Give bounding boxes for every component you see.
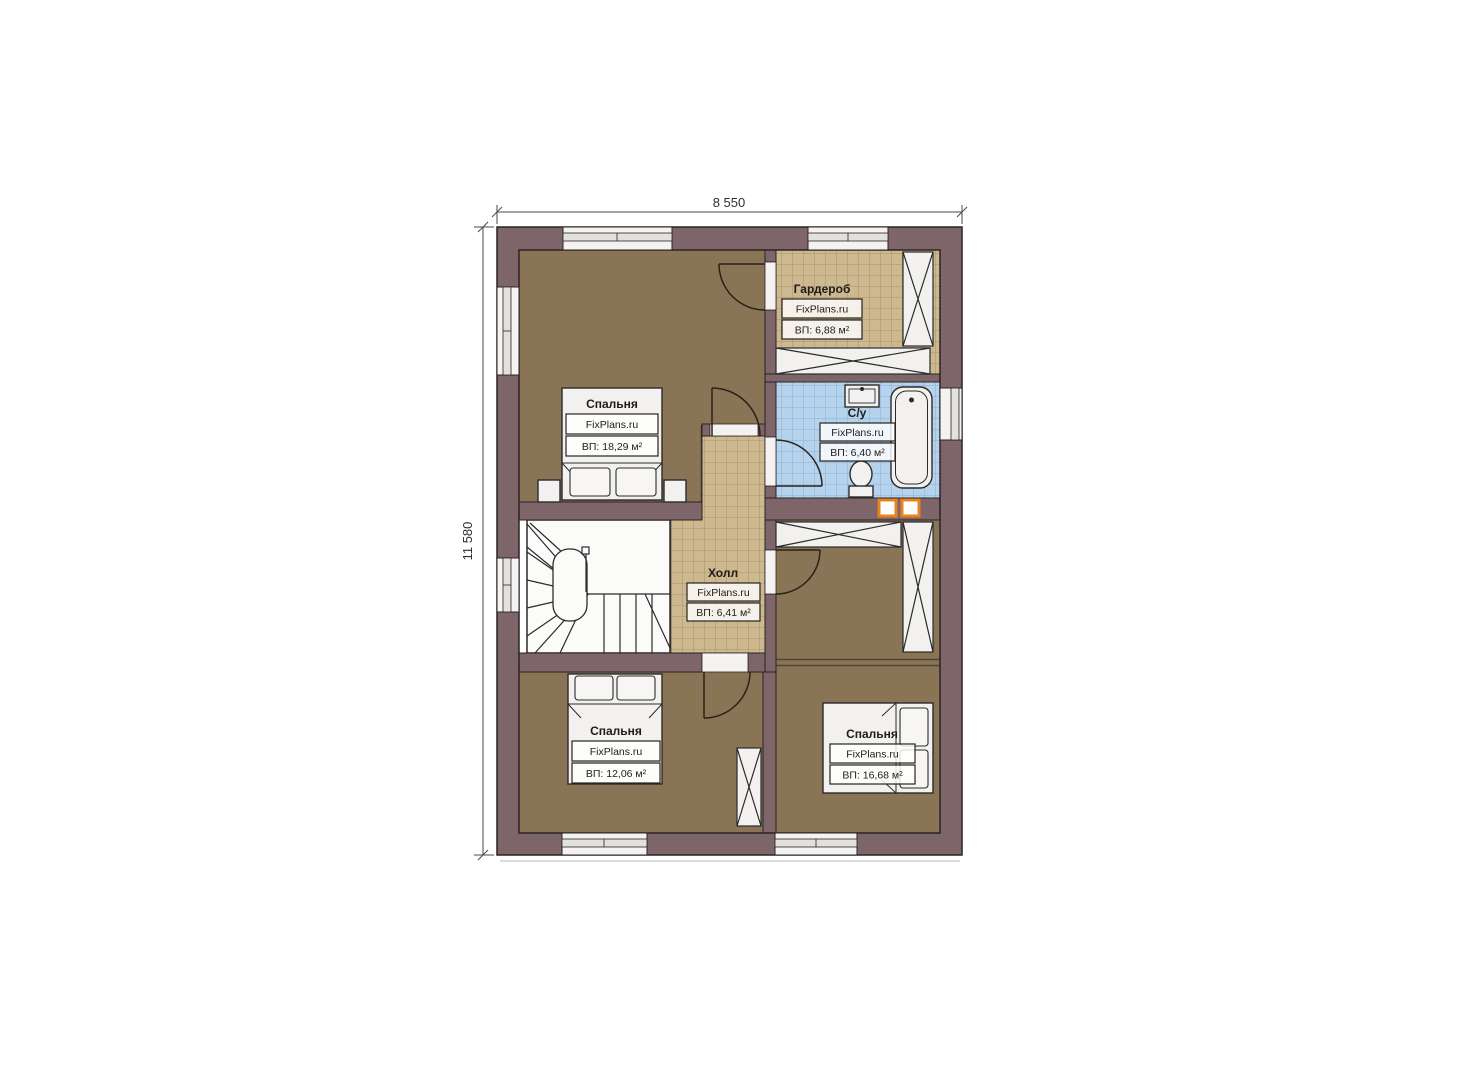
- closet-bedroom-3-right: [903, 522, 933, 652]
- closet-bedroom-2-right: [737, 748, 761, 826]
- window-right-bathroom: [940, 388, 962, 440]
- brand-text: FixPlans.ru: [590, 746, 643, 758]
- wall-segment: [765, 594, 776, 672]
- window-bottom-bedroom-2: [562, 833, 647, 855]
- window-bottom-bedroom-3: [775, 833, 857, 855]
- sink: [845, 385, 879, 407]
- bathtub: [891, 387, 932, 488]
- room-name: С/у: [848, 406, 867, 420]
- pillow: [900, 708, 928, 746]
- vent-orange-2: [902, 500, 919, 516]
- vent-orange-1: [879, 500, 896, 516]
- room-name: Гардероб: [794, 282, 851, 296]
- window-top-wardrobe: [808, 227, 888, 250]
- closet-wardrobe-bottom: [776, 348, 930, 374]
- wall-segment: [765, 250, 776, 262]
- brand-text: FixPlans.ru: [796, 304, 849, 316]
- dimension-width-label: 8 550: [713, 195, 746, 210]
- window-left-bedroom-1: [497, 287, 519, 375]
- nightstand: [664, 480, 686, 502]
- window-left-stairs: [497, 558, 519, 612]
- opening-bedroom-1: [710, 424, 758, 436]
- wall-below-bedroom-1: [519, 502, 702, 520]
- brand-text: FixPlans.ru: [846, 749, 899, 761]
- toilet: [849, 461, 873, 497]
- room-name: Спальня: [846, 727, 898, 741]
- area-text: ВП: 18,29 м²: [582, 441, 643, 453]
- pillow: [575, 676, 613, 700]
- room-name: Холл: [708, 566, 738, 580]
- wall-stub: [748, 653, 765, 672]
- closet-wardrobe-right: [903, 252, 933, 346]
- closet-bedroom-3-top: [776, 522, 901, 547]
- area-text: ВП: 12,06 м²: [586, 768, 647, 780]
- nightstand: [538, 480, 560, 502]
- stair-arrow-start: [582, 547, 589, 554]
- room-name: Спальня: [586, 397, 638, 411]
- wall-wardrobe-bath-divider: [765, 374, 940, 382]
- pillow: [617, 676, 655, 700]
- window-top-bedroom-1: [563, 227, 672, 250]
- area-text: ВП: 6,41 м²: [696, 607, 751, 619]
- brand-text: FixPlans.ru: [586, 419, 639, 431]
- opening-bathroom: [765, 437, 776, 486]
- floor-plan-canvas: Спальня FixPlans.ru ВП: 18,29 м² Гардеро…: [0, 0, 1473, 1080]
- stair-railing: [553, 549, 587, 621]
- pillow: [616, 468, 656, 496]
- opening-wardrobe: [765, 262, 776, 310]
- area-text: ВП: 6,40 м²: [830, 447, 885, 459]
- wall-between-bedrooms: [763, 672, 776, 833]
- brand-text: FixPlans.ru: [697, 587, 750, 599]
- room-name: Спальня: [590, 724, 642, 738]
- pillow: [570, 468, 610, 496]
- area-text: ВП: 6,88 м²: [795, 325, 850, 337]
- wall-stub: [702, 424, 710, 436]
- area-text: ВП: 16,68 м²: [842, 770, 903, 782]
- brand-text: FixPlans.ru: [831, 427, 884, 439]
- opening-bedroom-2: [702, 653, 748, 672]
- label-wardrobe: Гардероб FixPlans.ru ВП: 6,88 м²: [782, 282, 862, 339]
- opening-bedroom-3: [765, 550, 776, 594]
- wall-below-hall: [519, 653, 702, 672]
- dimension-height-label: 11 580: [460, 522, 475, 561]
